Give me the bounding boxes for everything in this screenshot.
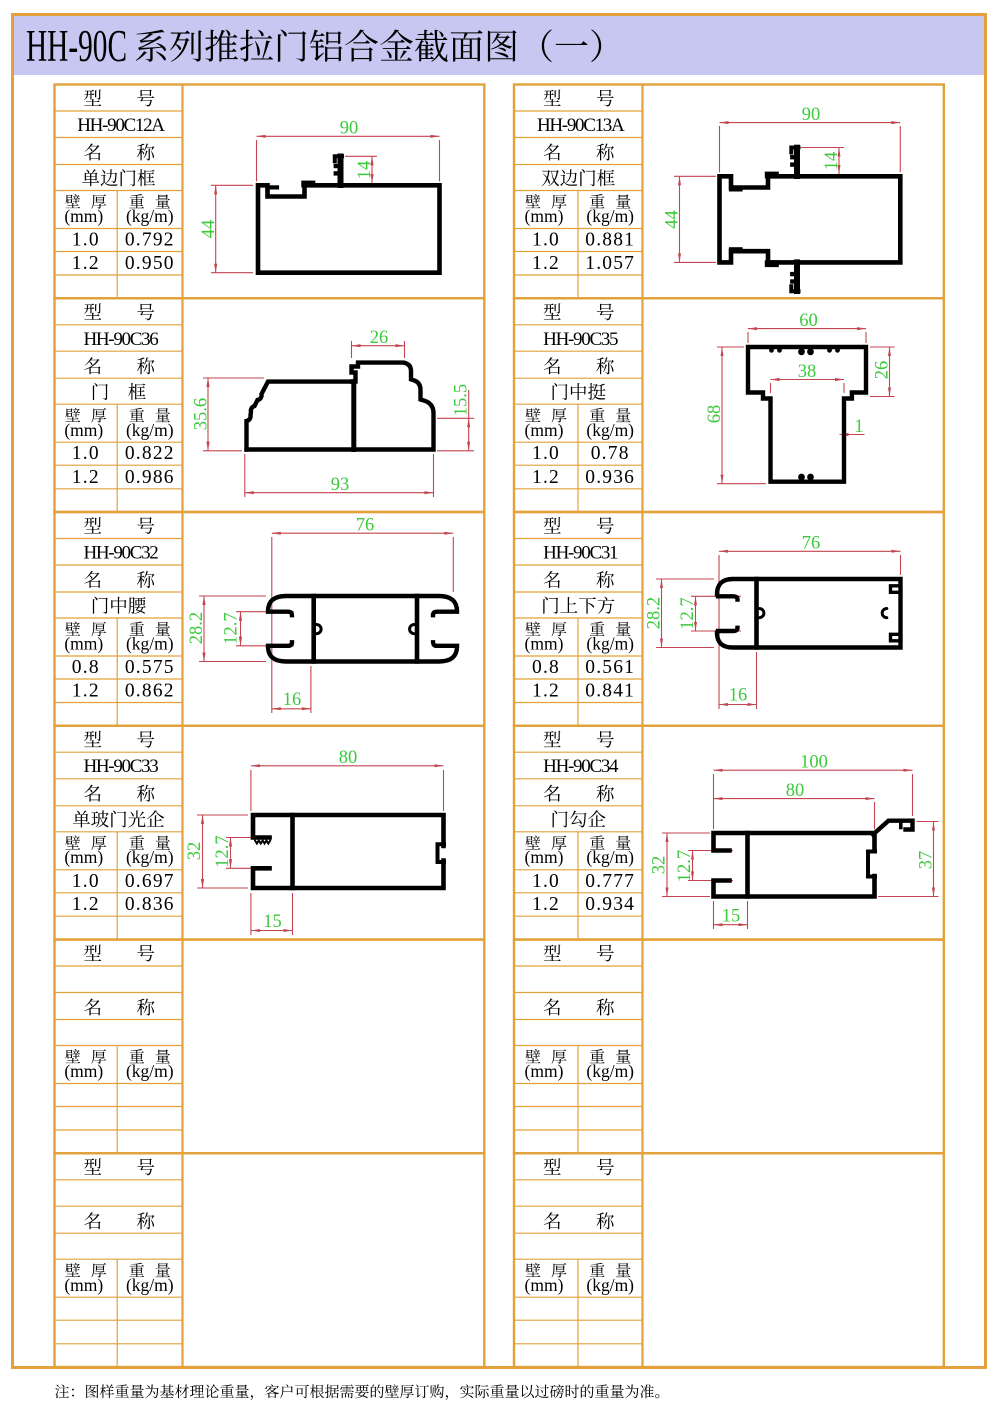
svg-text:HH-90C32: HH-90C32	[83, 543, 158, 564]
svg-text:38: 38	[798, 362, 817, 382]
svg-text:80: 80	[786, 781, 805, 801]
svg-text:0.950: 0.950	[125, 253, 175, 274]
svg-text:0.936: 0.936	[585, 467, 635, 488]
svg-text:90: 90	[802, 105, 821, 125]
svg-text:1.2: 1.2	[532, 467, 560, 488]
svg-text:15: 15	[263, 912, 282, 932]
svg-text:(mm): (mm)	[525, 206, 564, 226]
svg-text:0.575: 0.575	[125, 657, 175, 678]
svg-text:(mm): (mm)	[525, 1061, 564, 1081]
svg-text:12.7: 12.7	[222, 612, 242, 644]
svg-text:1.0: 1.0	[72, 871, 100, 892]
svg-text:(mm): (mm)	[525, 1275, 564, 1295]
svg-text:(kg/m): (kg/m)	[126, 634, 174, 654]
svg-text:1.2: 1.2	[72, 467, 100, 488]
svg-text:76: 76	[356, 516, 375, 536]
svg-text:(kg/m): (kg/m)	[586, 206, 634, 226]
svg-text:HH-90C33: HH-90C33	[83, 756, 158, 777]
svg-text:80: 80	[339, 748, 358, 768]
svg-text:32: 32	[185, 842, 205, 861]
svg-text:1.0: 1.0	[532, 443, 560, 464]
svg-text:(kg/m): (kg/m)	[586, 1275, 634, 1295]
svg-text:1.2: 1.2	[532, 681, 560, 702]
svg-text:1.057: 1.057	[585, 253, 635, 274]
svg-text:0.862: 0.862	[125, 681, 175, 702]
svg-text:(kg/m): (kg/m)	[586, 847, 634, 867]
svg-text:0.777: 0.777	[585, 871, 635, 892]
svg-text:0.881: 0.881	[585, 230, 635, 251]
svg-text:(mm): (mm)	[64, 1061, 103, 1081]
svg-text:(kg/m): (kg/m)	[586, 1061, 634, 1081]
svg-text:93: 93	[331, 475, 350, 495]
svg-text:(mm): (mm)	[64, 634, 103, 654]
svg-text:26: 26	[370, 328, 389, 348]
svg-text:28.2: 28.2	[187, 612, 207, 644]
svg-text:0.78: 0.78	[591, 443, 630, 464]
svg-text:(mm): (mm)	[525, 420, 564, 440]
svg-text:0.561: 0.561	[585, 657, 635, 678]
svg-text:(kg/m): (kg/m)	[126, 206, 174, 226]
svg-text:100: 100	[800, 753, 828, 773]
svg-text:14: 14	[822, 152, 842, 171]
svg-text:68: 68	[705, 405, 725, 424]
svg-text:(mm): (mm)	[64, 420, 103, 440]
svg-text:12.7: 12.7	[678, 597, 698, 629]
svg-text:(mm): (mm)	[525, 847, 564, 867]
svg-text:1.0: 1.0	[72, 443, 100, 464]
svg-text:1.2: 1.2	[72, 894, 100, 915]
svg-text:60: 60	[799, 311, 818, 331]
svg-text:HH-90C31: HH-90C31	[543, 543, 618, 564]
svg-text:(kg/m): (kg/m)	[126, 847, 174, 867]
svg-text:HH-90C13A: HH-90C13A	[537, 115, 625, 136]
svg-text:32: 32	[650, 856, 670, 875]
svg-text:(kg/m): (kg/m)	[126, 1061, 174, 1081]
svg-text:1.0: 1.0	[72, 230, 100, 251]
svg-text:(kg/m): (kg/m)	[126, 1275, 174, 1295]
svg-text:HH-90C34: HH-90C34	[543, 756, 619, 777]
svg-text:1.2: 1.2	[72, 253, 100, 274]
svg-text:HH-90C35: HH-90C35	[543, 329, 618, 350]
svg-text:44: 44	[663, 210, 683, 229]
svg-text:15: 15	[722, 907, 741, 927]
svg-text:(kg/m): (kg/m)	[586, 420, 634, 440]
svg-text:37: 37	[917, 851, 937, 870]
svg-text:0.986: 0.986	[125, 467, 175, 488]
svg-text:0.836: 0.836	[125, 894, 175, 915]
svg-text:76: 76	[802, 534, 821, 554]
svg-text:35.6: 35.6	[192, 398, 212, 430]
svg-text:12.7: 12.7	[213, 835, 233, 867]
svg-text:14: 14	[355, 161, 375, 180]
svg-text:44: 44	[199, 220, 219, 239]
svg-text:(kg/m): (kg/m)	[126, 420, 174, 440]
svg-text:90: 90	[340, 119, 359, 139]
svg-text:(mm): (mm)	[64, 847, 103, 867]
svg-text:HH-90C36: HH-90C36	[83, 329, 158, 350]
svg-text:1.2: 1.2	[72, 681, 100, 702]
svg-text:12.7: 12.7	[675, 850, 695, 882]
svg-text:(kg/m): (kg/m)	[586, 634, 634, 654]
svg-text:1: 1	[854, 417, 863, 437]
svg-text:0.8: 0.8	[532, 657, 560, 678]
svg-text:0.822: 0.822	[125, 443, 175, 464]
svg-text:1.0: 1.0	[532, 871, 560, 892]
svg-text:16: 16	[729, 686, 748, 706]
svg-text:15.5: 15.5	[452, 384, 472, 416]
svg-text:(mm): (mm)	[64, 1275, 103, 1295]
svg-text:26: 26	[873, 361, 893, 380]
svg-text:HH-90C12A: HH-90C12A	[77, 115, 165, 136]
svg-text:HH-90C: HH-90C	[26, 21, 127, 71]
svg-text:0.841: 0.841	[585, 681, 635, 702]
svg-text:(mm): (mm)	[64, 206, 103, 226]
svg-text:0.792: 0.792	[125, 230, 175, 251]
svg-text:0.8: 0.8	[72, 657, 100, 678]
svg-text:0.697: 0.697	[125, 871, 175, 892]
svg-text:(mm): (mm)	[525, 634, 564, 654]
svg-text:28.2: 28.2	[645, 597, 665, 629]
svg-text:16: 16	[283, 690, 302, 710]
svg-text:1.2: 1.2	[532, 894, 560, 915]
svg-text:1.2: 1.2	[532, 253, 560, 274]
svg-text:0.934: 0.934	[585, 894, 635, 915]
svg-text:1.0: 1.0	[532, 230, 560, 251]
